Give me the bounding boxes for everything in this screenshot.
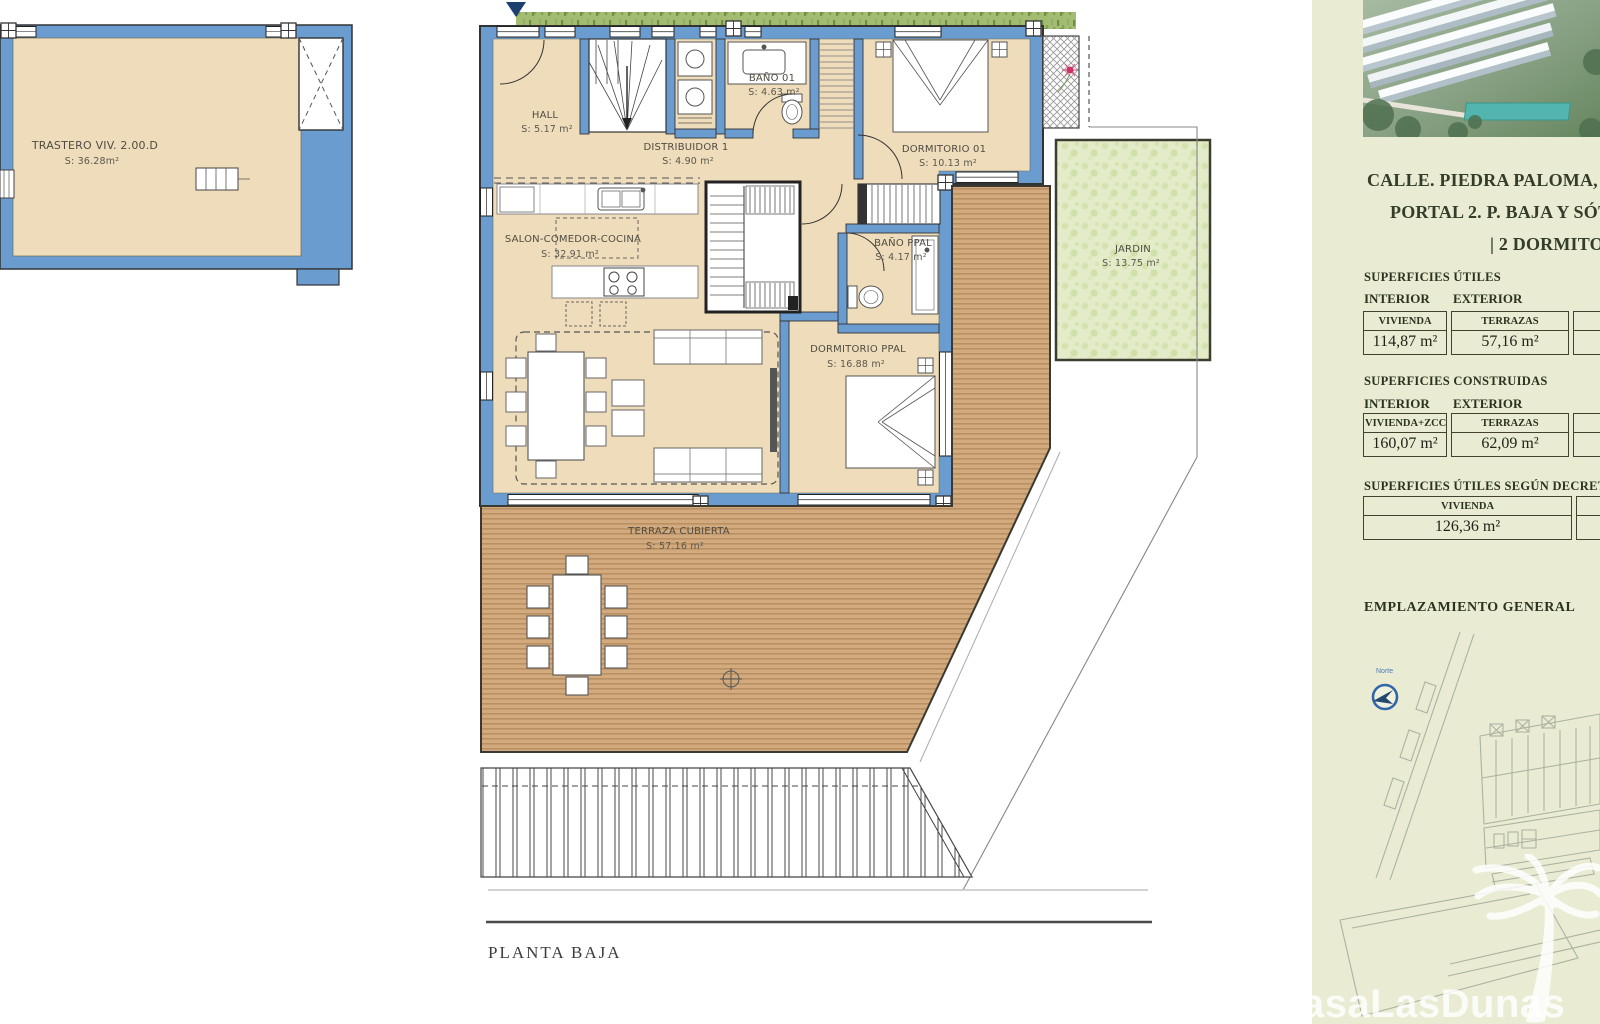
floorplan-drawing: TRASTERO VIV. 2.00.D S: 36.28m² HALL S: … bbox=[0, 0, 1312, 1024]
address-line-2: PORTAL 2. P. BAJA Y SÓTA bbox=[1390, 202, 1600, 223]
utility-closet bbox=[678, 42, 712, 123]
tv-unit bbox=[770, 368, 777, 452]
room-area-salon: S: 32.91 m² bbox=[541, 249, 599, 260]
th-terrazas-2: TERRAZAS bbox=[1452, 414, 1568, 433]
room-area-dormppal: S: 16.88 m² bbox=[827, 359, 885, 370]
th-vivienda-zcc: VIVIENDA+ZCC bbox=[1364, 414, 1446, 433]
shaft-hatch bbox=[299, 38, 343, 130]
section-title-construidas: SUPERFICIES CONSTRUIDAS bbox=[1364, 374, 1548, 389]
col-label-exterior-1: EXTERIOR bbox=[1453, 291, 1522, 307]
room-label-salon: SALON-COMEDOR-COCINA bbox=[505, 234, 641, 245]
room-area-banoppal: S: 4.17 m² bbox=[875, 252, 927, 263]
room-label-terraza: TERRAZA CUBIERTA bbox=[627, 526, 730, 537]
trastero-room bbox=[0, 23, 352, 285]
td-terrazas-construidas: 62,09 m² bbox=[1452, 433, 1568, 456]
room-area-jardin: S: 13.75 m² bbox=[1102, 258, 1160, 269]
th-terrazas: TERRAZAS bbox=[1452, 312, 1568, 331]
master-bedroom-furniture bbox=[846, 358, 935, 485]
room-area-trastero: S: 36.28m² bbox=[65, 156, 120, 167]
room-area-dormitorio01: S: 10.13 m² bbox=[919, 158, 977, 169]
floorplan-sheet: TRASTERO VIV. 2.00.D S: 36.28m² HALL S: … bbox=[0, 0, 1600, 1024]
room-label-trastero: TRASTERO VIV. 2.00.D bbox=[31, 139, 158, 152]
room-label-jardin: JARDIN bbox=[1114, 244, 1151, 255]
emplazamiento-title: EMPLAZAMIENTO GENERAL bbox=[1364, 600, 1575, 616]
address-line-1: CALLE. PIEDRA PALOMA, 4. E bbox=[1367, 170, 1600, 191]
room-label-hall: HALL bbox=[532, 110, 559, 121]
table-decreto: VIVIENDA 126,36 m² bbox=[1363, 496, 1600, 540]
td-vivienda-construidas: 160,07 m² bbox=[1364, 433, 1446, 456]
col-label-interior-2: INTERIOR bbox=[1364, 396, 1430, 412]
room-label-dormppal: DORMITORIO PPAL bbox=[810, 344, 906, 355]
td-vivienda-utiles: 114,87 m² bbox=[1364, 331, 1446, 354]
plan-title: PLANTA BAJA bbox=[488, 943, 622, 962]
room-label-banoppal: BAÑO PPAL bbox=[874, 236, 932, 249]
section-title-decreto: SUPERFICIES ÚTILES SEGÚN DECRETO E bbox=[1364, 479, 1600, 494]
hatched-planter bbox=[1043, 36, 1079, 128]
address-line-3: | 2 DORMITOR bbox=[1490, 234, 1600, 255]
th-vivienda-decreto: VIVIENDA bbox=[1364, 497, 1571, 516]
section-title-utiles: SUPERFICIES ÚTILES bbox=[1364, 270, 1501, 285]
room-label-distribuidor: DISTRIBUIDOR 1 bbox=[644, 142, 729, 153]
th-vivienda: VIVIENDA bbox=[1364, 312, 1446, 331]
compass-label: Norte bbox=[1376, 668, 1393, 675]
td-terrazas-utiles: 57,16 m² bbox=[1452, 331, 1568, 354]
room-area-distribuidor: S: 4.90 m² bbox=[662, 156, 714, 167]
basement-stairwell bbox=[706, 182, 800, 312]
building-photo bbox=[1363, 0, 1600, 137]
compass-icon bbox=[1362, 676, 1408, 722]
room-label-dormitorio01: DORMITORIO 01 bbox=[902, 144, 986, 155]
td-vivienda-decreto: 126,36 m² bbox=[1364, 516, 1571, 539]
room-area-hall: S: 5.17 m² bbox=[521, 124, 573, 135]
dining-table bbox=[528, 352, 584, 460]
col-label-exterior-2: EXTERIOR bbox=[1453, 396, 1522, 412]
table-superficies-utiles: VIVIENDA 114,87 m² TERRAZAS 57,16 m² bbox=[1363, 311, 1600, 355]
room-area-bano01: S: 4.63 m² bbox=[748, 87, 800, 98]
pergola bbox=[481, 768, 972, 877]
col-label-interior-1: INTERIOR bbox=[1364, 291, 1430, 307]
palm-tree-watermark-icon bbox=[1460, 854, 1600, 1024]
room-area-terraza: S: 57.16 m² bbox=[646, 541, 704, 552]
table-superficies-construidas: VIVIENDA+ZCC 160,07 m² TERRAZAS 62,09 m² bbox=[1363, 413, 1600, 457]
main-staircase bbox=[589, 39, 666, 132]
info-panel: CALLE. PIEDRA PALOMA, 4. E PORTAL 2. P. … bbox=[1312, 0, 1600, 1024]
room-label-bano01: BAÑO 01 bbox=[749, 71, 795, 84]
